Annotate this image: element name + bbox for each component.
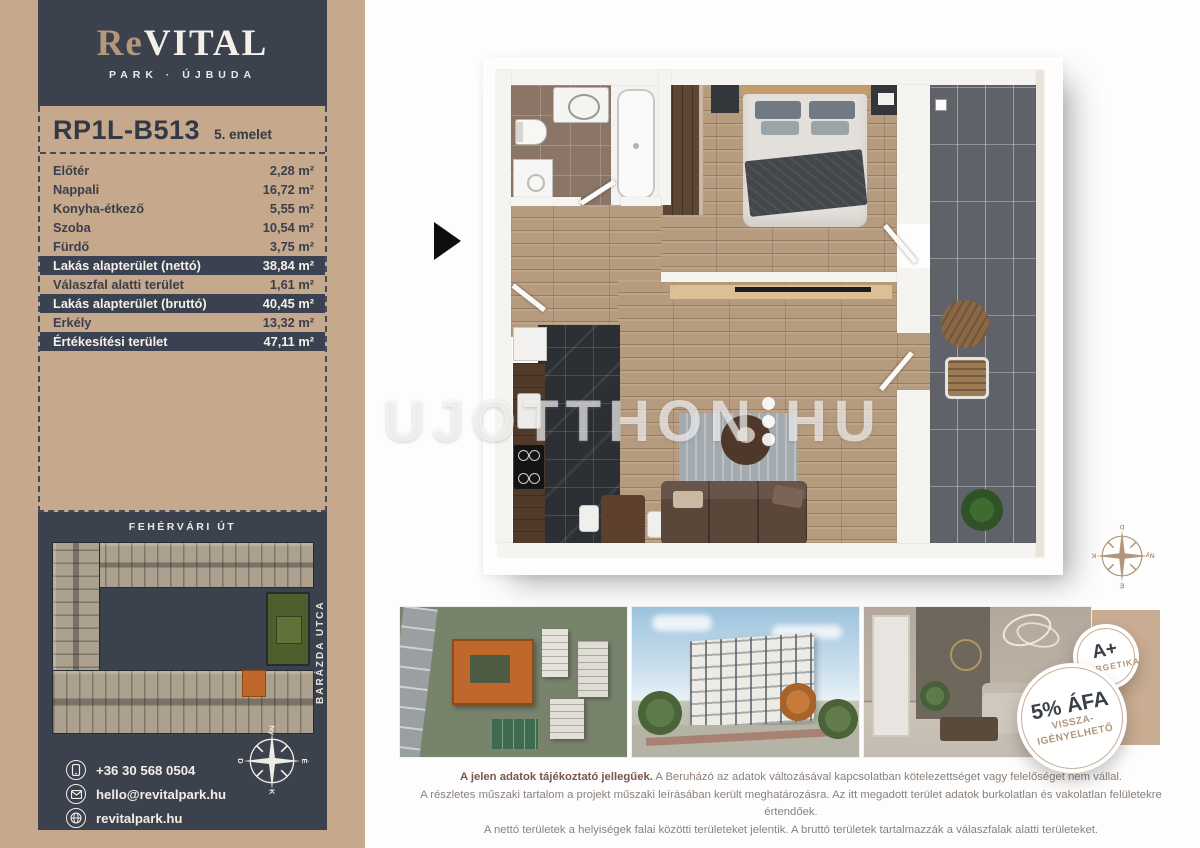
balcony-drain [935, 99, 947, 111]
vat-badge-line2: VISSZA- [1033, 710, 1112, 737]
washing-machine [513, 159, 553, 201]
courtyard-garden [266, 592, 310, 666]
bed-pillow [761, 121, 799, 135]
area-row: Válaszfal alatti terület1,61 m² [40, 275, 325, 294]
area-row-sales: Értékesítési terület47,11 m² [40, 332, 325, 351]
bed-pillow [811, 121, 849, 135]
floor-plan [483, 57, 1063, 575]
brand-wordmark: ReVITAL [97, 25, 269, 62]
balcony-plant [961, 489, 1003, 531]
phone-icon [66, 760, 86, 780]
email-icon [66, 784, 86, 804]
vat-refund-badge: 5% ÁFA VISSZA- IGÉNYELHETŐ [1017, 663, 1127, 773]
aerial-building [542, 629, 568, 677]
disclaimer-line1: A jelen adatok tájékoztató jellegűek. A … [415, 769, 1167, 787]
wall [621, 197, 661, 206]
garden-lawn [276, 616, 302, 644]
aerial-building [550, 699, 584, 739]
brand-wordmark-rest: VITAL [144, 23, 268, 64]
contact-email[interactable]: hello@revitalpark.hu [66, 782, 226, 806]
bathroom-sink [553, 87, 609, 123]
contact-website-value: revitalpark.hu [96, 811, 183, 826]
tree [638, 691, 682, 735]
tree [818, 699, 858, 739]
balcony-chair [945, 357, 989, 399]
area-row-total-gross: Lakás alapterület (bruttó)40,45 m² [40, 294, 325, 313]
area-value: 3,75 m² [270, 237, 325, 256]
autumn-tree [780, 681, 816, 723]
bed-pillow [809, 101, 855, 119]
compass-south-label: D [236, 758, 245, 764]
vat-badge-line3: IGÉNYELHETŐ [1036, 722, 1115, 749]
area-label: Konyha-étkező [40, 199, 144, 218]
contact-phone[interactable]: +36 30 568 0504 [66, 758, 226, 782]
wall [659, 70, 671, 205]
balcony-railing [1036, 70, 1044, 557]
area-row: Fürdő3,75 m² [40, 237, 325, 256]
area-row: Erkély13,32 m² [40, 313, 325, 332]
area-row: Nappali16,72 m² [40, 180, 325, 199]
disclaimer: A jelen adatok tájékoztató jellegűek. A … [415, 769, 1167, 839]
photo-aerial-view [400, 607, 627, 757]
unit-header: RP1L-B513 5. emelet [40, 106, 325, 154]
tv [735, 287, 871, 292]
bed-headboard [741, 85, 869, 94]
wall [897, 269, 930, 333]
aerial-road [400, 607, 438, 757]
brand-subtitle: PARK · ÚJBUDA [109, 69, 256, 81]
highlighted-unit-marker [242, 670, 266, 697]
wall [496, 70, 511, 543]
compass-south-label: D [1119, 523, 1124, 530]
compass-west-label: Ny [268, 725, 277, 735]
area-label: Értékesítési terület [40, 332, 168, 351]
contact-block: +36 30 568 0504 hello@revitalpark.hu rev… [66, 758, 226, 830]
brand-logo: ReVITAL PARK · ÚJBUDA [38, 0, 327, 106]
nightstand-left [711, 85, 739, 113]
balcony-table [941, 300, 989, 348]
entrance-arrow [434, 222, 461, 260]
photo-building-render [632, 607, 859, 757]
wall [511, 197, 581, 206]
interior-plant [920, 679, 950, 713]
cloud [652, 615, 712, 631]
watermark-text-right: HU [785, 388, 883, 455]
watermark: UJOTTHON HU [383, 388, 883, 455]
sofa-cushion [673, 491, 703, 508]
area-value: 47,11 m² [263, 332, 325, 351]
compass-north-label: É [300, 758, 309, 763]
compass-east-label: K [1091, 552, 1096, 559]
left-column: ReVITAL PARK · ÚJBUDA RP1L-B513 5. emele… [38, 0, 327, 830]
compass-east-label: K [268, 789, 277, 795]
watermark-text-left: UJOTTHON [383, 388, 758, 455]
area-label: Válaszfal alatti terület [40, 275, 184, 294]
street-label-fehervari: FEHÉRVÁRI ÚT [38, 521, 327, 533]
brochure-page: ReVITAL PARK · ÚJBUDA RP1L-B513 5. emele… [0, 0, 1200, 848]
unit-code: RP1L-B513 [53, 115, 200, 146]
area-value: 1,61 m² [270, 275, 325, 294]
pendant-light [1014, 618, 1062, 652]
toilet [515, 119, 547, 145]
area-label: Előtér [40, 161, 89, 180]
area-value: 10,54 m² [263, 218, 325, 237]
area-label: Nappali [40, 180, 99, 199]
area-value: 13,32 m² [263, 313, 325, 332]
area-label: Fürdő [40, 237, 89, 256]
area-value: 40,45 m² [263, 294, 325, 313]
contact-phone-value: +36 30 568 0504 [96, 763, 195, 778]
area-value: 38,84 m² [263, 256, 325, 275]
disclaimer-line2: A részletes műszaki tartalom a projekt m… [415, 787, 1167, 822]
site-plan-panel: FEHÉRVÁRI ÚT BARÁZDA UTCA É K D Ny [38, 512, 327, 830]
compass-west-label: Ny [1146, 552, 1155, 559]
area-row-total-net: Lakás alapterület (nettó)38,84 m² [40, 256, 325, 275]
building-wing-south [52, 670, 314, 734]
contact-email-value: hello@revitalpark.hu [96, 787, 226, 802]
disclaimer-lead: A jelen adatok tájékoztató jellegűek. [460, 771, 653, 783]
area-table: Előtér2,28 m² Nappali16,72 m² Konyha-étk… [40, 154, 325, 351]
aerial-sports-court [492, 719, 538, 749]
area-value: 2,28 m² [270, 161, 325, 180]
area-label: Lakás alapterület (nettó) [40, 256, 201, 275]
brand-wordmark-accent: Re [97, 23, 144, 64]
aerial-building [578, 641, 608, 697]
interior-door [872, 615, 910, 737]
site-compass: É K D Ny [237, 726, 307, 796]
fridge [513, 327, 547, 361]
bathtub [617, 89, 655, 199]
compass-north-label: É [1119, 581, 1124, 590]
wall [661, 272, 897, 282]
dining-table [601, 495, 645, 547]
area-value: 16,72 m² [263, 180, 325, 199]
aerial-highlighted-building [452, 639, 534, 705]
interior-coffee-table [940, 717, 998, 741]
street-label-barazda: BARÁZDA UTCA [315, 574, 326, 704]
wall [897, 390, 930, 543]
watermark-dots-icon [762, 395, 775, 449]
area-value: 5,55 m² [270, 199, 325, 218]
disclaimer-line1-text: A Beruházó az adatok változásával kapcso… [655, 771, 1122, 783]
contact-website[interactable]: revitalpark.hu [66, 806, 226, 830]
dining-chair [579, 505, 599, 532]
wall [498, 543, 1036, 557]
floor-plan-compass: É K D Ny [1090, 524, 1154, 588]
site-map [52, 542, 314, 734]
area-row: Előtér2,28 m² [40, 161, 325, 180]
globe-icon [66, 808, 86, 828]
area-label: Szoba [40, 218, 91, 237]
interior-mirror [950, 639, 982, 671]
unit-info-panel: RP1L-B513 5. emelet Előtér2,28 m² Nappal… [38, 106, 327, 512]
unit-floor: 5. emelet [214, 127, 272, 142]
area-row: Konyha-étkező5,55 m² [40, 199, 325, 218]
disclaimer-line3: A nettó területek a helyiségek falai köz… [415, 822, 1167, 840]
area-label: Erkély [40, 313, 91, 332]
area-row: Szoba10,54 m² [40, 218, 325, 237]
area-label: Lakás alapterület (bruttó) [40, 294, 207, 313]
vat-badge-title: 5% ÁFA [1029, 687, 1110, 725]
wall [498, 70, 1036, 85]
bed-pillow [755, 101, 801, 119]
wall [897, 85, 930, 223]
